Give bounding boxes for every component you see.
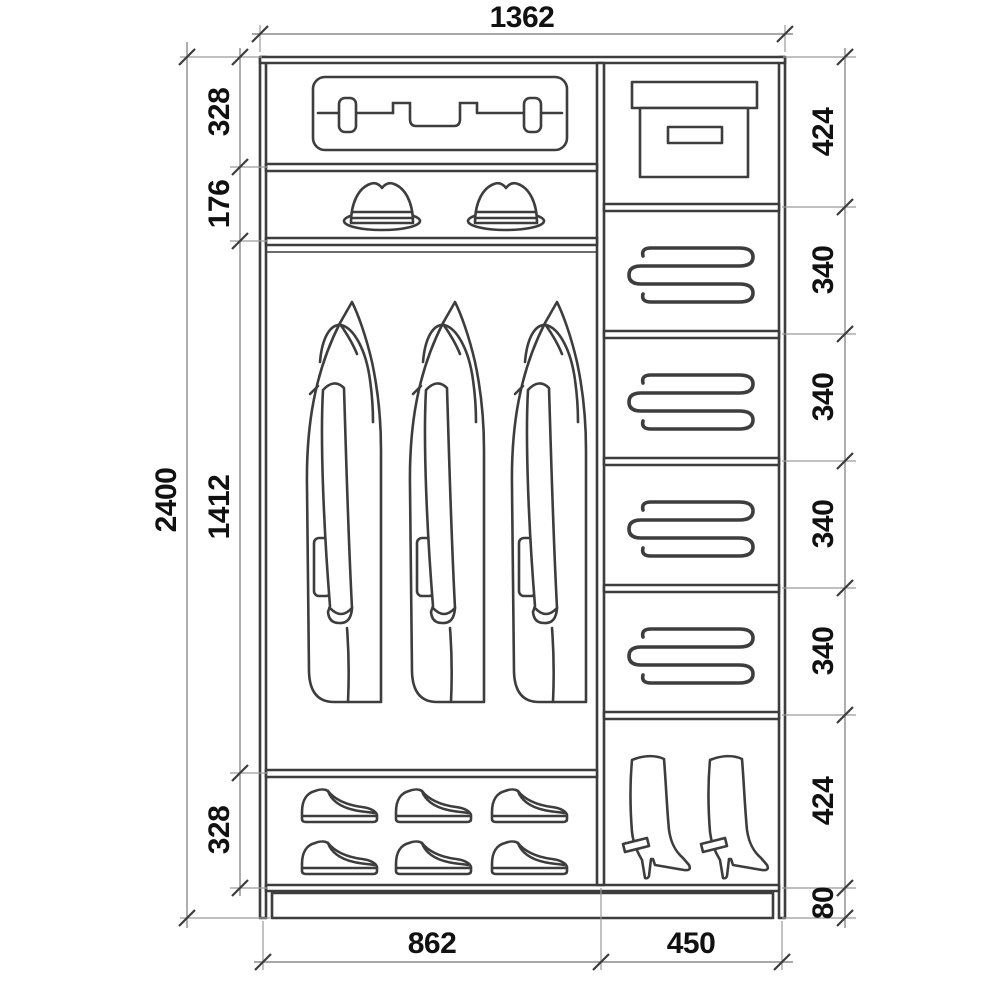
suitcase-icon: [313, 77, 567, 150]
dimension-right-column: 424 340 340 340 340 424 80: [782, 48, 856, 928]
bottom-panel: [266, 885, 779, 891]
wardrobe-diagram: 1362 2400 328 176 1412 328: [0, 0, 1000, 1000]
dimension-left-column: 328 176 1412 328: [203, 48, 268, 896]
right-shelf-3: [604, 458, 779, 465]
hat-icon: [344, 183, 420, 230]
dim-label-left-2: 176: [203, 180, 236, 229]
dim-label-right-6: 424: [807, 776, 840, 825]
shoe-icon: [302, 790, 377, 823]
dim-label-left-1: 328: [203, 88, 236, 137]
dim-label-right-2: 340: [807, 246, 840, 295]
left-side-panel: [260, 57, 266, 918]
boot-icon: [623, 756, 690, 878]
right-shelf-4: [604, 585, 779, 592]
middle-partition: [597, 63, 604, 885]
right-shelf-2: [604, 331, 779, 338]
folded-linen-icon: [629, 502, 753, 556]
shoe-icon: [396, 790, 471, 823]
dim-label-left-3: 1412: [203, 475, 236, 540]
shelf-above-shoes: [266, 770, 597, 777]
right-side-panel: [779, 57, 785, 918]
shoe-icon: [396, 842, 471, 875]
dim-label-right-4: 340: [807, 500, 840, 549]
folded-linen-icon: [629, 248, 753, 302]
coat-icon: [410, 302, 484, 702]
dim-label-total-width: 1362: [490, 1, 555, 34]
dim-label-bottom-left: 862: [408, 927, 457, 960]
folded-linen-icon: [629, 629, 753, 683]
dim-label-right-3: 340: [807, 373, 840, 422]
dim-label-right-5: 340: [807, 627, 840, 676]
right-shelf-1: [604, 204, 779, 211]
dim-label-bottom-right: 450: [667, 927, 716, 960]
shoe-icon: [492, 790, 567, 823]
hat-icon: [468, 183, 544, 230]
dim-label-total-height: 2400: [150, 468, 183, 533]
dim-label-right-7: 80: [807, 887, 840, 919]
shelf-below-suitcase: [266, 164, 597, 171]
plinth: [272, 893, 773, 918]
folded-linen-icon: [629, 375, 753, 429]
top-panel: [260, 57, 785, 63]
coat-icon: [512, 302, 586, 702]
storage-box-icon: [632, 82, 757, 177]
shelf-below-hats: [266, 238, 597, 245]
shoe-icon: [302, 842, 377, 875]
right-shelf-5: [604, 712, 779, 719]
shoe-icon: [492, 842, 567, 875]
coat-icon: [307, 302, 381, 702]
dimension-top-width: 1362: [252, 1, 793, 52]
boot-icon: [701, 756, 768, 878]
diagram-svg: 1362 2400 328 176 1412 328: [0, 0, 1000, 1000]
dim-label-right-1: 424: [807, 107, 840, 156]
dim-label-left-4: 328: [203, 806, 236, 855]
